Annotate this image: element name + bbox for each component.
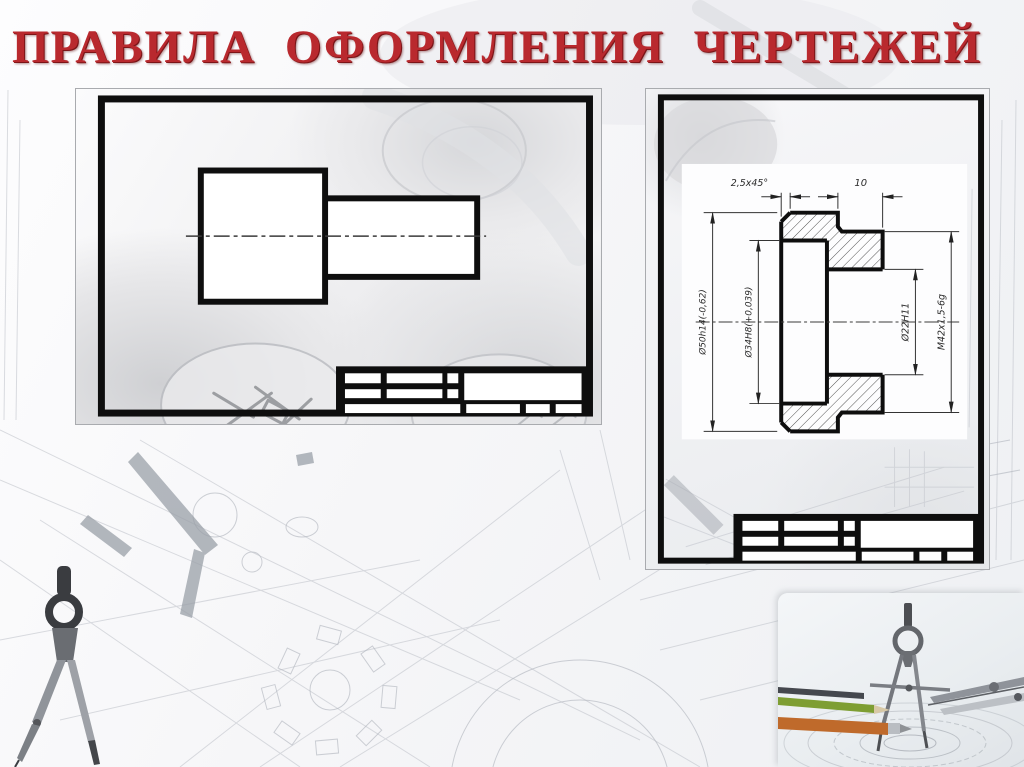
- compass-hinge: [52, 628, 78, 662]
- compass-ring: [895, 628, 921, 654]
- drawing-panel: [682, 164, 967, 439]
- compass-left-leg: [32, 660, 66, 726]
- figure-drawing-sheet: [75, 88, 602, 425]
- label-d22: Ø22H11: [900, 303, 911, 343]
- compass-handle: [57, 566, 71, 596]
- compass-pencil-tip: [88, 740, 100, 765]
- shaft-view: [323, 198, 477, 277]
- compass-right-leg: [67, 660, 95, 742]
- compass-ring: [49, 597, 79, 627]
- figure-dimensioned-drawing: 2,5x45° 10 Ø50h14(-0,62) Ø34H8(+0,039) Ø…: [645, 88, 990, 570]
- compass-needle: [15, 760, 19, 767]
- label-d50: Ø50h14(-0,62): [698, 289, 709, 356]
- compass-pencils-photo: [778, 593, 1024, 767]
- metal-tools: [928, 677, 1024, 715]
- label-chamfer: 2,5x45°: [731, 178, 768, 189]
- compass-screw: [906, 685, 913, 692]
- concentric-arcs: [784, 703, 1024, 767]
- compass-stem: [904, 603, 912, 627]
- label-length10: 10: [854, 178, 867, 189]
- title-block: [733, 514, 981, 561]
- compass-right-tip: [924, 731, 927, 748]
- pencil-ferrule: [888, 723, 900, 734]
- compass-pencils-svg: [778, 593, 1024, 767]
- dimensioned-drawing-svg: 2,5x45° 10 Ø50h14(-0,62) Ø34H8(+0,039) Ø…: [646, 89, 989, 569]
- slide-title: ПРАВИЛА ОФОРМЛЕНИЯ ЧЕРТЕЖЕЙ: [12, 20, 982, 74]
- label-d34: Ø34H8(+0,039): [743, 287, 754, 359]
- drafting-compass-image: [0, 558, 120, 767]
- compass-left-tip: [878, 733, 881, 751]
- orange-pencil-tip: [900, 724, 912, 733]
- label-m42: M42x1,5-6g: [936, 294, 947, 350]
- tool-screw: [1014, 693, 1022, 701]
- compass-left-leg: [881, 655, 902, 733]
- slide-canvas: ПРАВИЛА ОФОРМЛЕНИЯ ЧЕРТЕЖЕЙ: [0, 0, 1024, 767]
- orange-pencil: [778, 717, 888, 735]
- dark-pen: [778, 687, 864, 699]
- tool-knob: [989, 682, 999, 692]
- compass-left-lower-leg: [17, 724, 40, 762]
- title-block: [336, 366, 589, 413]
- drawing-sheet-svg: [76, 89, 601, 424]
- green-pencil: [778, 697, 874, 713]
